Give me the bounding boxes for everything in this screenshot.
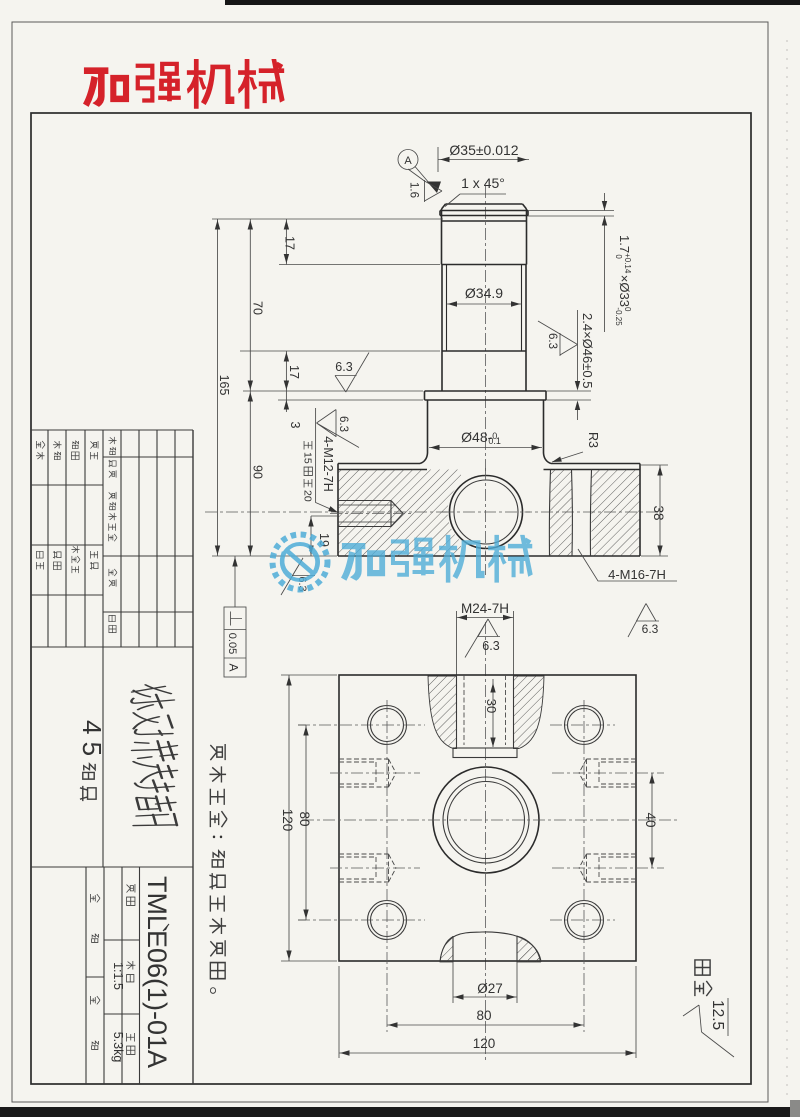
svg-text:4-M12-7H: 4-M12-7H [321, 436, 335, 492]
svg-text:2.4×Ø46±0.5: 2.4×Ø46±0.5 [580, 313, 595, 388]
svg-text:4-M16-7H: 4-M16-7H [608, 567, 666, 582]
svg-text:1.6: 1.6 [408, 182, 420, 198]
svg-text:17: 17 [287, 365, 301, 379]
svg-text:A: A [404, 155, 412, 167]
svg-text:15: 15 [302, 452, 314, 464]
svg-text:80: 80 [476, 1008, 491, 1023]
svg-text:Ø27: Ø27 [477, 981, 503, 996]
svg-text:70: 70 [251, 301, 265, 315]
svg-text:120: 120 [473, 1036, 496, 1051]
svg-text:90: 90 [251, 465, 265, 479]
svg-text:17: 17 [283, 236, 297, 250]
svg-text:30: 30 [484, 699, 499, 713]
svg-text:1.7+0.140×Ø330-0.25: 1.7+0.140×Ø330-0.25 [614, 235, 632, 326]
svg-text:12.5: 12.5 [709, 1000, 726, 1030]
svg-text:120: 120 [280, 809, 295, 832]
svg-text:165: 165 [217, 375, 231, 396]
svg-text:1:1.5: 1:1.5 [111, 962, 125, 990]
svg-text:3: 3 [288, 422, 302, 429]
svg-text:6.3: 6.3 [337, 416, 349, 432]
svg-text:6.3: 6.3 [482, 639, 499, 653]
svg-text:80: 80 [297, 811, 312, 826]
svg-text:Ø34.9: Ø34.9 [465, 285, 503, 301]
svg-text:Ø35±0.012: Ø35±0.012 [449, 142, 518, 158]
svg-text:A: A [227, 663, 241, 671]
svg-text:1 x 45°: 1 x 45° [461, 175, 505, 191]
svg-text:6.3: 6.3 [546, 333, 558, 349]
svg-text:0.05: 0.05 [226, 633, 238, 654]
svg-text:5.3kg: 5.3kg [111, 1032, 125, 1063]
svg-text:4 5: 4 5 [77, 720, 107, 756]
svg-text:6.3: 6.3 [335, 360, 352, 374]
svg-text:6.3: 6.3 [642, 622, 659, 636]
svg-text:20: 20 [302, 490, 314, 502]
svg-text:38: 38 [651, 505, 666, 520]
svg-text:Ø48-00.1: Ø48-00.1 [461, 429, 501, 446]
svg-text:R3: R3 [586, 432, 600, 448]
svg-text:M24-7H: M24-7H [461, 601, 509, 616]
svg-text:40: 40 [643, 812, 658, 827]
svg-text:TMLE06(1)-01A: TMLE06(1)-01A [142, 876, 172, 1068]
